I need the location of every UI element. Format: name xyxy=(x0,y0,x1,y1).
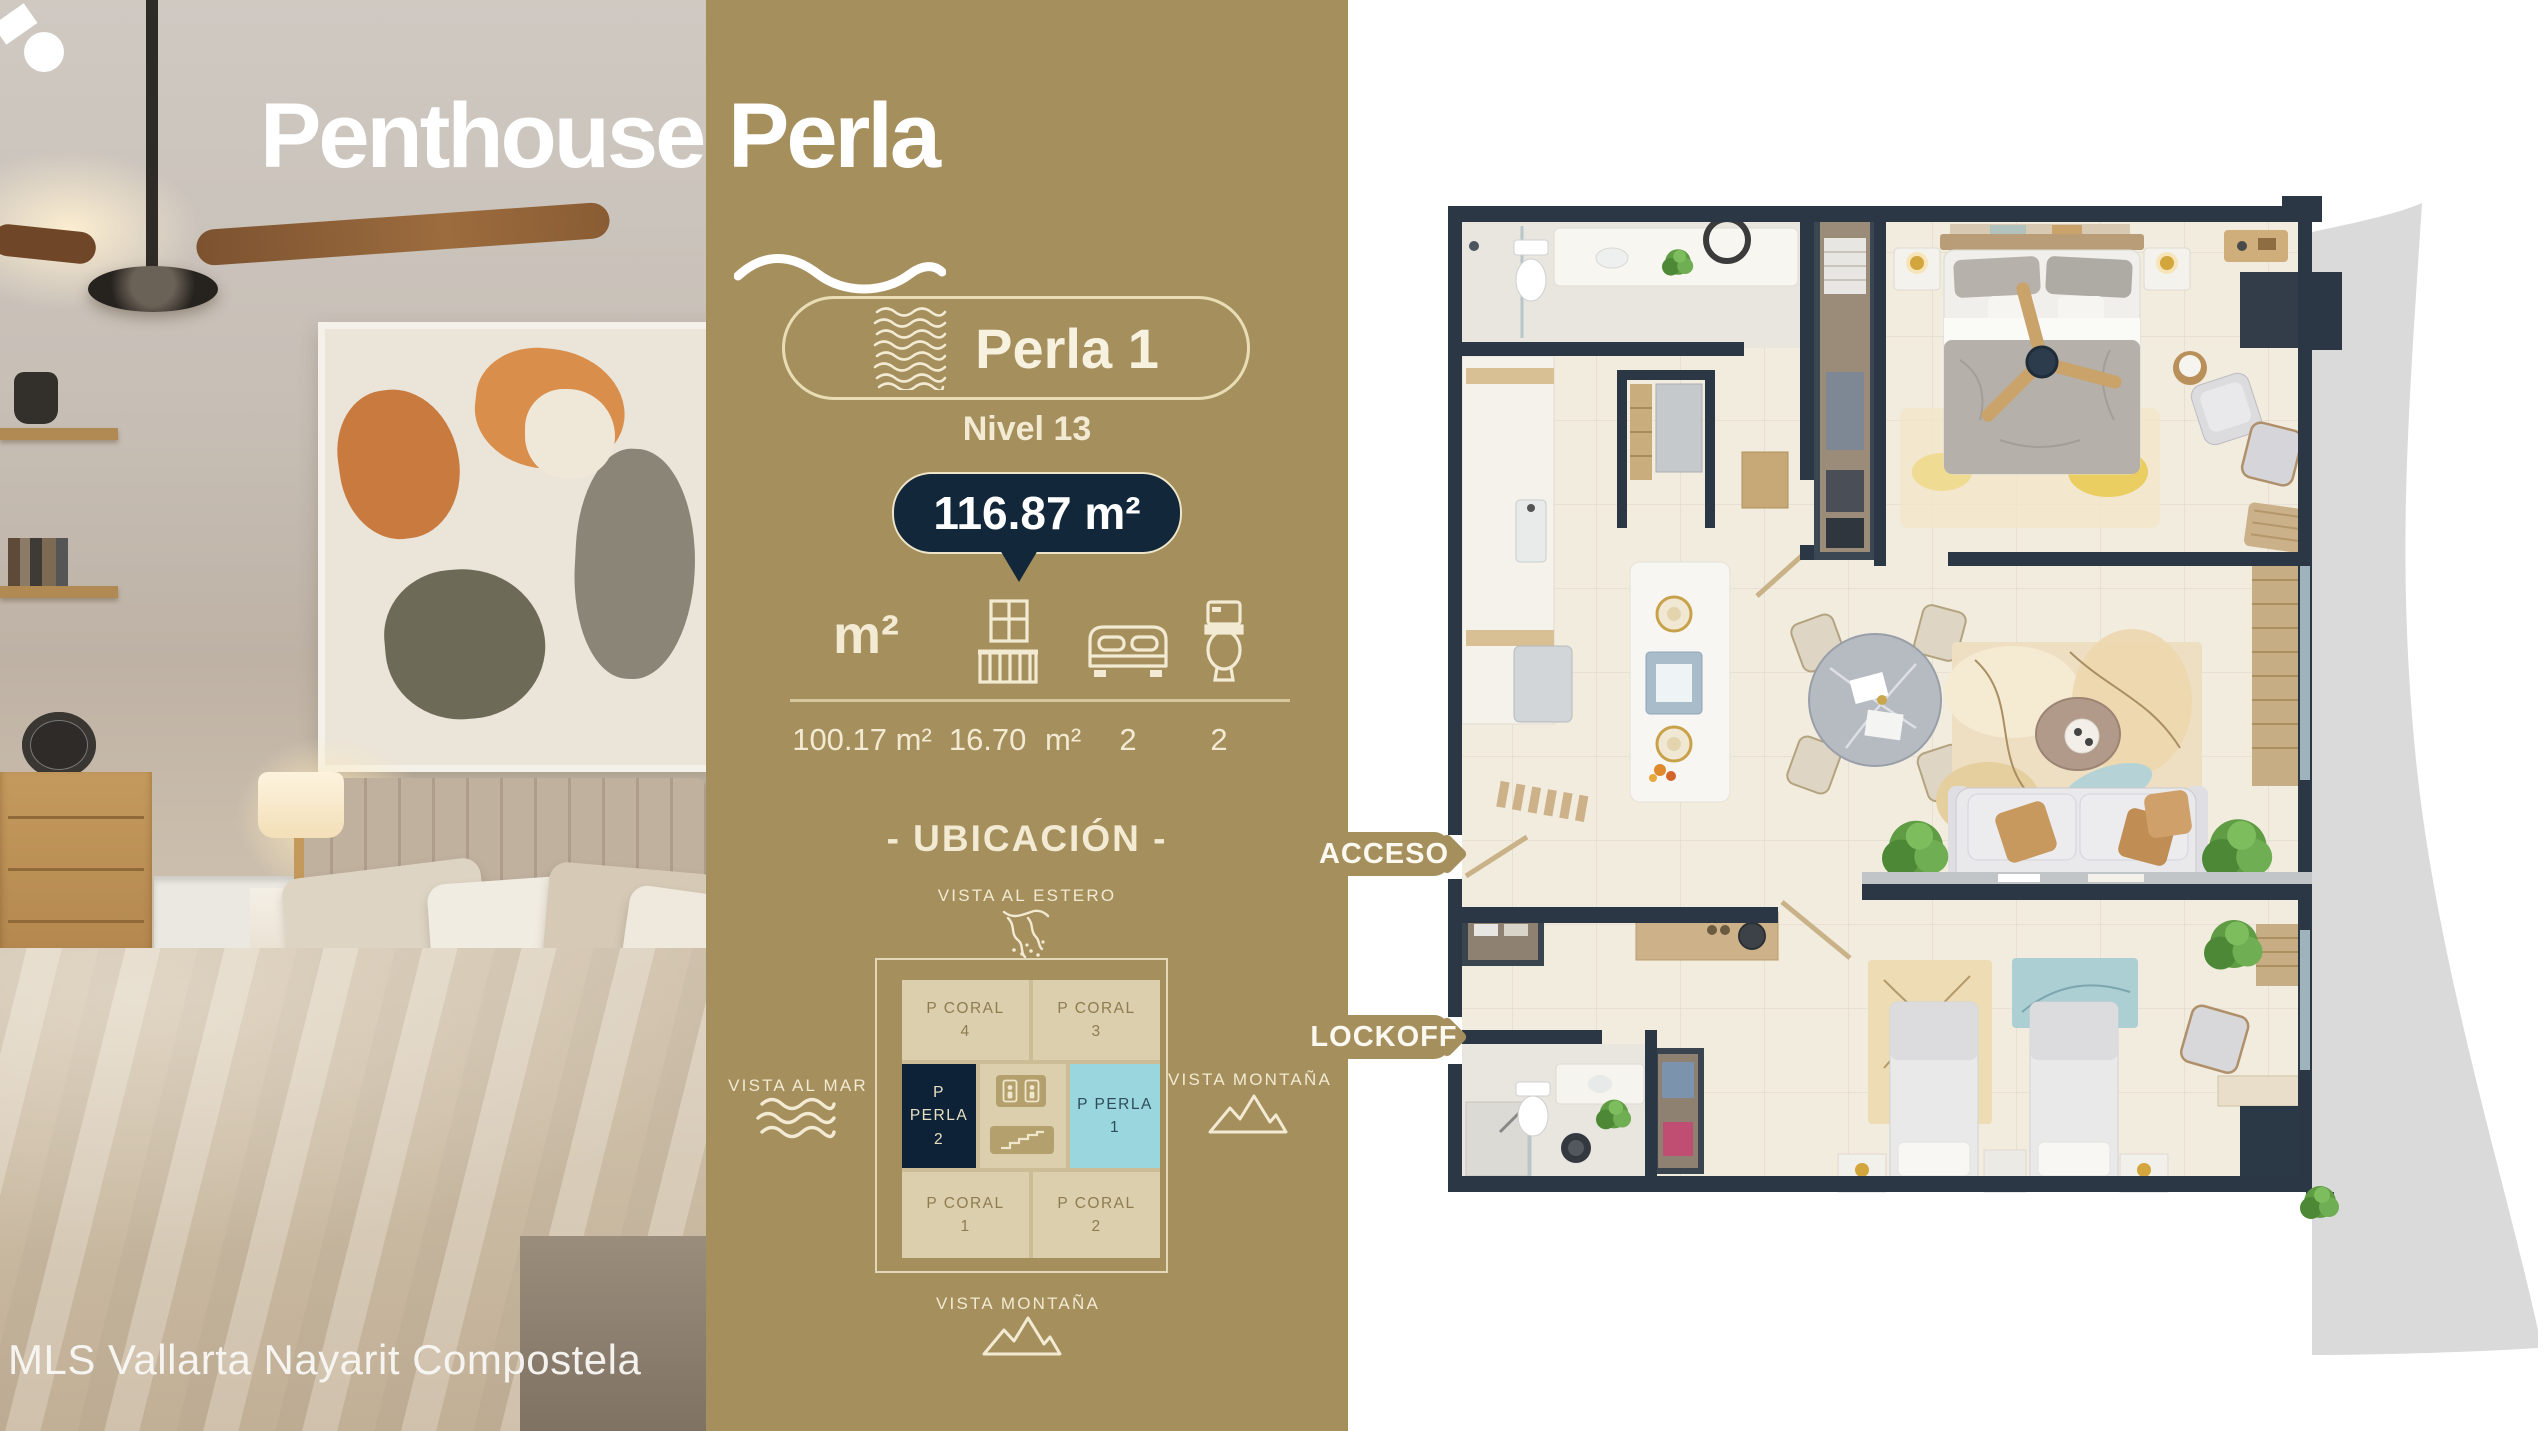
elevators-icon xyxy=(996,1075,1046,1107)
terrace-icon xyxy=(976,598,1040,686)
kitchen-island xyxy=(1630,562,1730,802)
vista-montana-right-label: VISTA MONTAÑA xyxy=(1168,1070,1332,1090)
mountains-icon xyxy=(982,1314,1062,1356)
unit-level: Nivel 13 xyxy=(706,410,1348,449)
ceiling-fan-blade xyxy=(195,202,611,267)
location-diagram: P CORAL4 P CORAL3 P PERLA2 P PERLA1 P CO… xyxy=(902,980,1160,1258)
acceso-callout: ACCESO xyxy=(1318,832,1450,876)
lockoff-callout: LOCKOFF xyxy=(1318,1015,1450,1059)
diagram-cell-perla2: P PERLA2 xyxy=(902,1064,976,1168)
sea-waves-icon xyxy=(756,1096,840,1142)
page-title-penthouse: Penthouse xyxy=(260,84,703,189)
interior-area-icon: m² xyxy=(806,604,926,666)
shelf-books xyxy=(8,538,94,586)
stairs-icon xyxy=(990,1126,1054,1154)
wall-shelf xyxy=(0,428,118,440)
stats-divider xyxy=(790,699,1290,702)
vista-mar-label: VISTA AL MAR xyxy=(716,1076,880,1096)
bedroom-photo xyxy=(0,0,706,1431)
bed-icon xyxy=(1086,620,1170,684)
estuary-icon xyxy=(998,908,1050,960)
lockoff-label: LOCKOFF xyxy=(1310,1021,1457,1054)
decor-vase xyxy=(14,372,58,424)
vista-estero-label: VISTA AL ESTERO xyxy=(706,886,1348,906)
flyer-page: Penthouse Perla MLS Vallarta Nayarit Com… xyxy=(0,0,2545,1431)
diagram-cell-perla1: P PERLA1 xyxy=(1070,1064,1160,1168)
wood-dresser xyxy=(0,772,152,958)
twin-bed xyxy=(2024,1002,2124,1190)
total-area-value: 116.87 m² xyxy=(933,486,1140,540)
twin-bed xyxy=(1884,1002,1984,1190)
mountains-icon xyxy=(1208,1092,1288,1134)
ubicacion-title: - UBICACIÓN - xyxy=(706,818,1348,860)
wall-shelf xyxy=(0,586,118,598)
bathroom-icon xyxy=(1202,598,1246,686)
unit-name: Perla 1 xyxy=(975,316,1159,381)
floor-rug xyxy=(520,1236,706,1431)
stat-bathrooms: 2 xyxy=(1188,722,1250,758)
diagram-cell-coral3: P CORAL3 xyxy=(1033,980,1160,1060)
total-area-badge: 116.87 m² xyxy=(892,472,1182,554)
stat-bedrooms: 2 xyxy=(1098,722,1158,758)
waves-stack-icon xyxy=(873,306,949,390)
diagram-cell-coral4: P CORAL4 xyxy=(902,980,1029,1060)
ceiling-fan-hub xyxy=(88,266,218,312)
stat-interior-area: 100.17 m² xyxy=(780,722,944,758)
abstract-wall-art xyxy=(318,322,706,772)
pantry xyxy=(1630,384,1702,480)
page-title-perla: Perla xyxy=(728,84,938,189)
decorative-gray-swoosh xyxy=(2312,203,2538,1355)
total-area-badge-tail xyxy=(1000,550,1038,582)
clock xyxy=(22,712,96,778)
stat-terrace-area: 16.70 m² xyxy=(944,722,1086,758)
diagram-cell-coral1: P CORAL1 xyxy=(902,1172,1029,1258)
table-lamp-shade xyxy=(258,772,344,838)
ceiling-fan-rod xyxy=(146,0,158,272)
vista-montana-bottom-label: VISTA MONTAÑA xyxy=(936,1294,1100,1314)
master-bedroom xyxy=(1894,224,2313,554)
hanger-hole xyxy=(24,32,64,72)
title-wave-icon xyxy=(734,246,946,300)
diagram-cell-coral2: P CORAL2 xyxy=(1033,1172,1160,1258)
acceso-label: ACCESO xyxy=(1319,838,1449,871)
unit-name-pill: Perla 1 xyxy=(782,296,1250,400)
watermark: MLS Vallarta Nayarit Compostela xyxy=(8,1336,641,1384)
diagram-core xyxy=(980,1064,1066,1168)
floor-plan xyxy=(1350,0,2545,1431)
